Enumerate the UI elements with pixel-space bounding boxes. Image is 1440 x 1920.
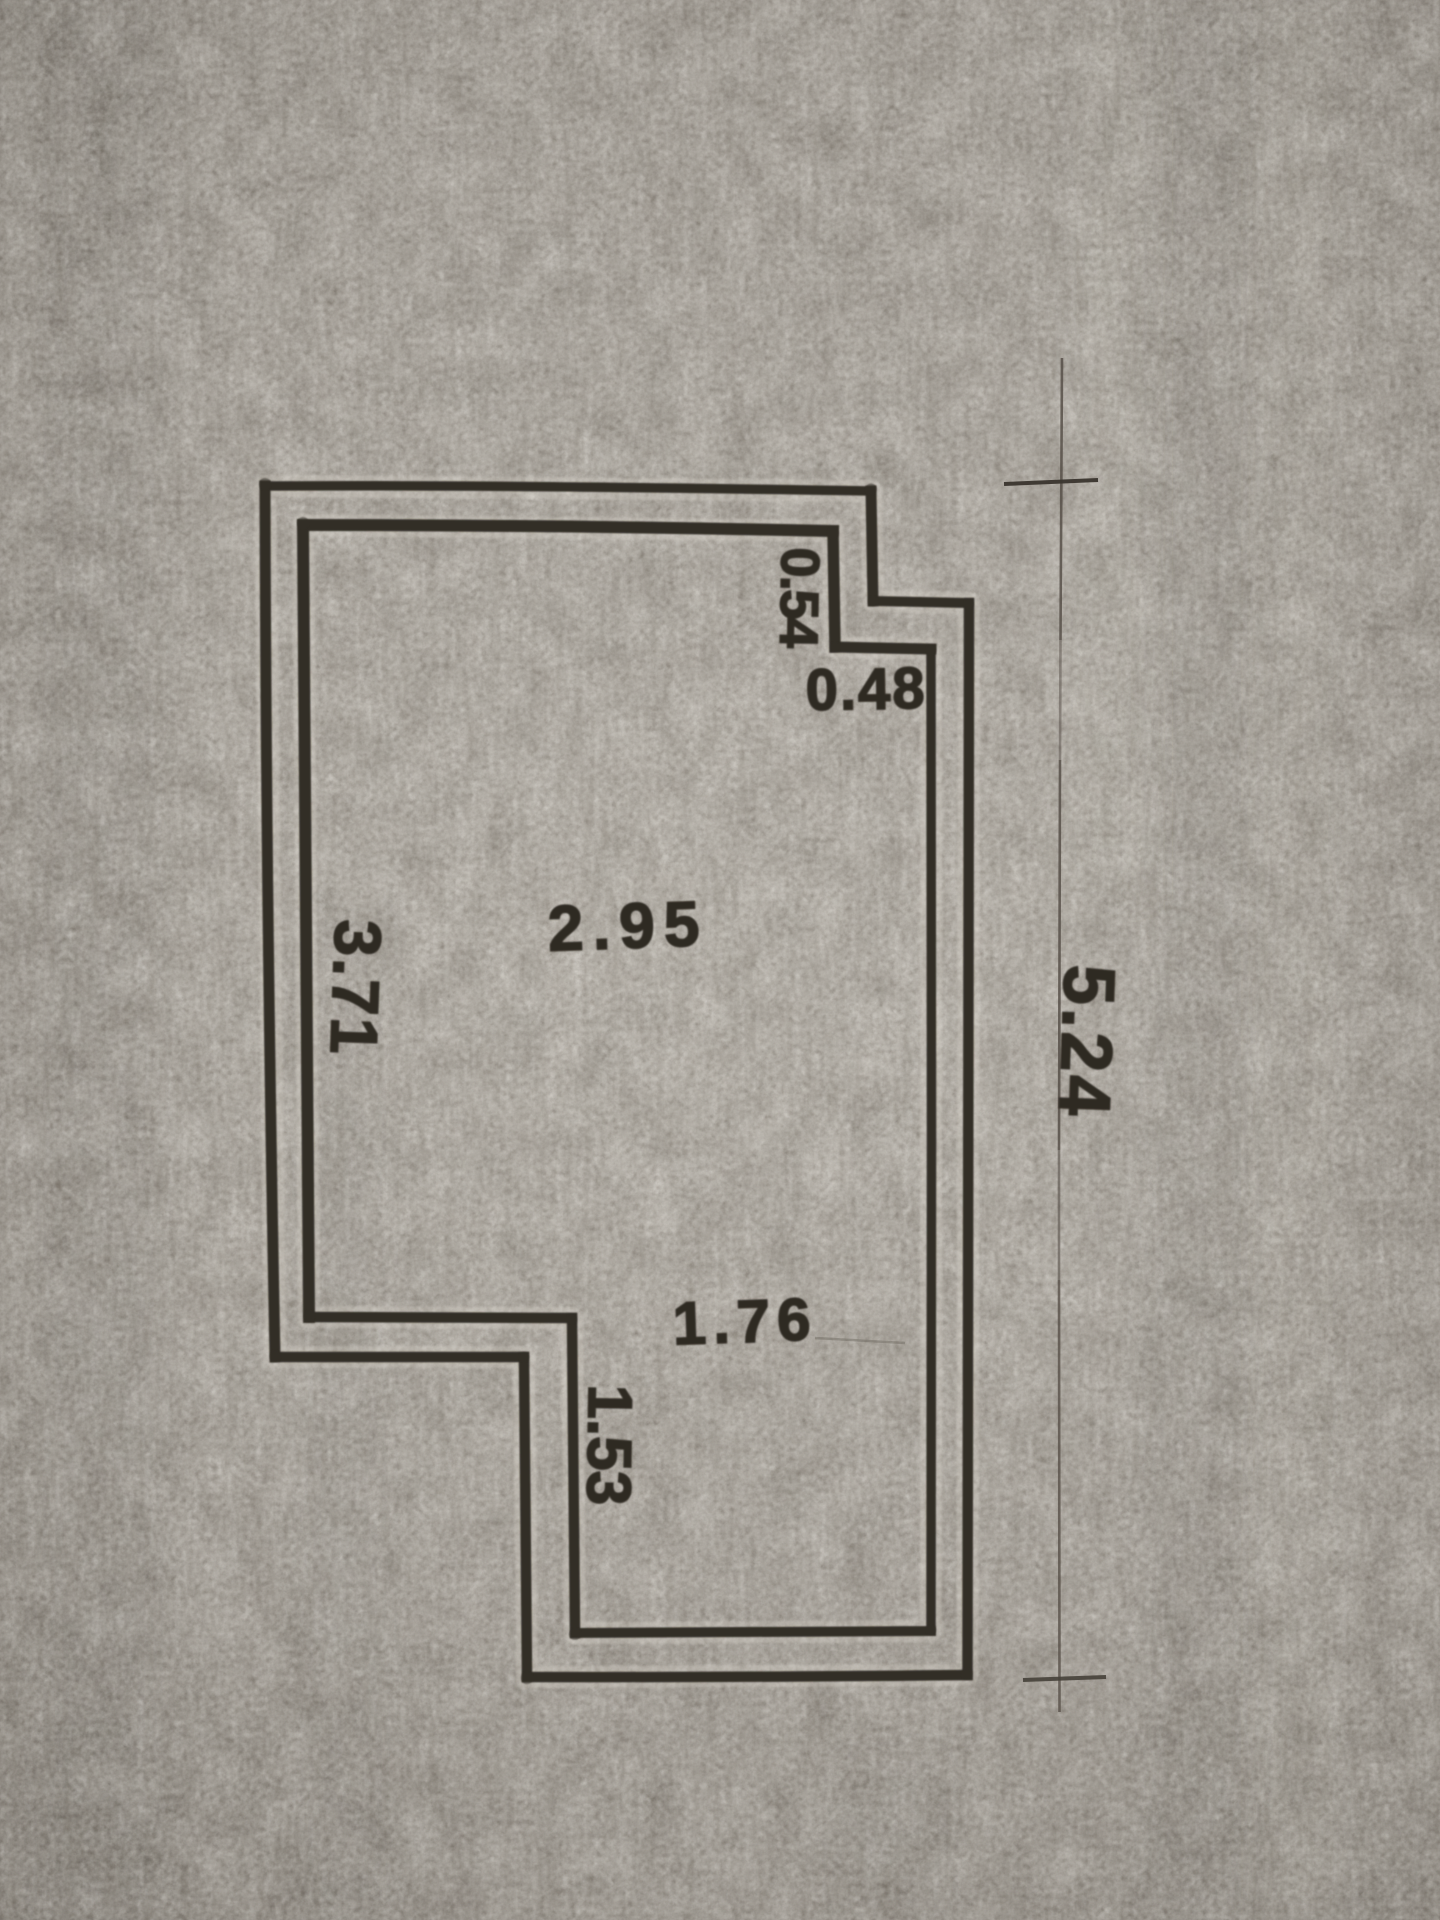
svg-text:1.53: 1.53 bbox=[573, 1384, 644, 1506]
svg-text:1.76: 1.76 bbox=[672, 1285, 819, 1357]
svg-text:2.95: 2.95 bbox=[547, 887, 710, 965]
svg-text:5.24: 5.24 bbox=[1043, 964, 1128, 1121]
svg-text:0.54: 0.54 bbox=[768, 547, 830, 649]
svg-text:3.71: 3.71 bbox=[317, 918, 396, 1057]
svg-text:0.48: 0.48 bbox=[805, 656, 927, 723]
